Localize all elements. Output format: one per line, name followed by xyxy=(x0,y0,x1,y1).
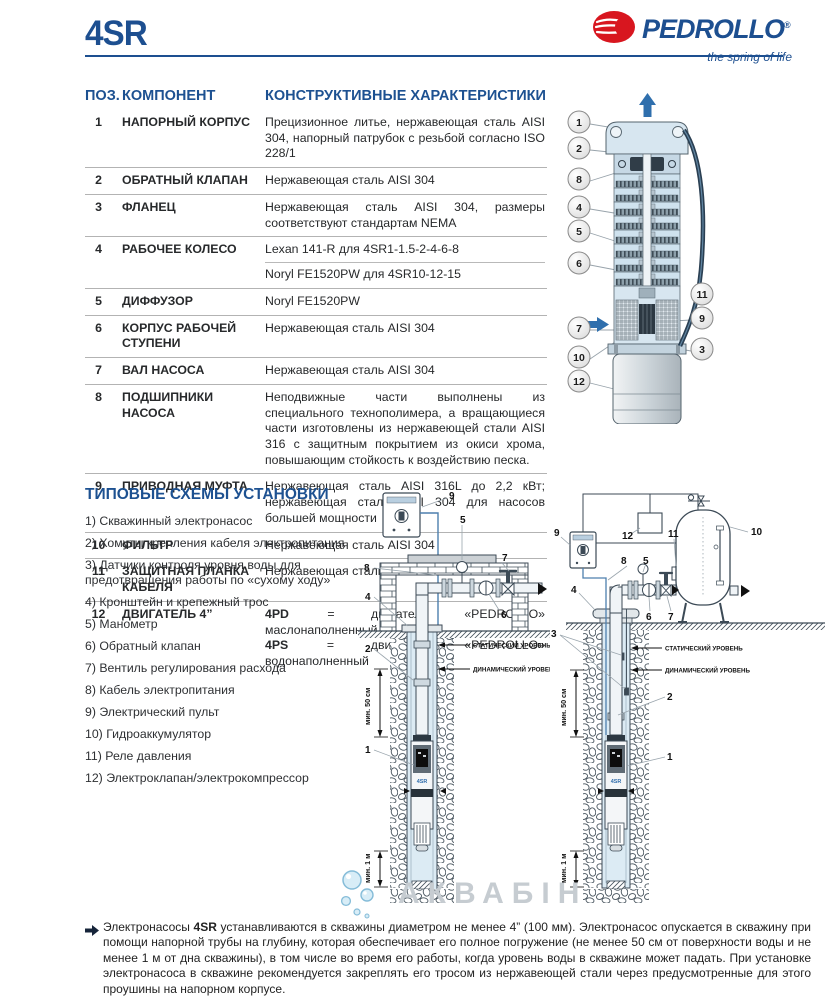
list-item: 9) Электрический пульт xyxy=(85,705,357,720)
catalog-page: 4SR PEDROLLO® the spring of life xyxy=(0,0,825,1000)
label-4: 4 xyxy=(571,585,577,596)
static-level-label: СТАТИЧЕСКИЙ УРОВЕНЬ xyxy=(665,645,743,653)
suction-strainer-left xyxy=(616,300,638,340)
motor-body xyxy=(613,354,681,424)
installation-diagram-pit: СТАТИЧЕСКИЙ УРОВЕНЬ ДИНАМИЧЕСКИЙ УРОВЕНЬ… xyxy=(350,483,550,908)
table-row: 7 ВАЛ НАСОСА Нержавеющая сталь AISI 304 xyxy=(85,358,547,385)
label-5: 5 xyxy=(460,515,466,526)
pump-drawing xyxy=(584,93,703,424)
label-5: 5 xyxy=(643,556,649,567)
water-levels: СТАТИЧЕСКИЙ УРОВЕНЬ ДИНАМИЧЕСКИЙ УРОВЕНЬ xyxy=(438,642,550,674)
pressure-gauge xyxy=(457,562,468,573)
note-arrow-icon xyxy=(85,920,103,997)
table-row: 3 ФЛАНЕЦ Нержавеющая сталь AISI 304, раз… xyxy=(85,194,547,236)
label-6: 6 xyxy=(501,610,507,621)
label-4: 4 xyxy=(365,592,371,603)
riser-pipe xyxy=(416,595,428,735)
install-section-title: ТИПОВЫЕ СХЕМЫ УСТАНОВКИ xyxy=(85,486,329,504)
callout-number: 8 xyxy=(576,174,582,186)
callout-number: 4 xyxy=(576,202,582,214)
brand-name: PEDROLLO® xyxy=(642,16,790,43)
label-8: 8 xyxy=(364,563,370,574)
list-item: 10) Гидроаккумулятор xyxy=(85,727,357,742)
dynamic-level-label: ДИНАМИЧЕСКИЙ УРОВЕНЬ xyxy=(473,666,550,674)
table-row: 4 РАБОЧЕЕ КОЛЕСО Lexan 141-R для 4SR1-1.… xyxy=(85,237,547,288)
label-2: 2 xyxy=(365,644,371,655)
table-row: 5 ДИФФУЗОР Noryl FE1520PW xyxy=(85,288,547,315)
footer-note: Электронасосы 4SR устанавливаются в сква… xyxy=(85,920,811,997)
dynamic-level-label: ДИНАМИЧЕСКИЙ УРОВЕНЬ xyxy=(665,667,750,675)
tank-top-fitting xyxy=(688,495,710,510)
list-item: 1) Скважинный электронасос xyxy=(85,514,357,529)
pump-model-label: 4SR xyxy=(417,779,428,785)
footer-text: Электронасосы 4SR устанавливаются в сква… xyxy=(103,920,811,997)
ground xyxy=(358,631,550,638)
pump-strainer xyxy=(608,823,624,845)
label-3: 3 xyxy=(551,629,557,640)
label-6: 6 xyxy=(646,612,652,623)
list-item: 8) Кабель электропитания xyxy=(85,683,357,698)
callout-number: 10 xyxy=(573,352,585,364)
pump-strainer xyxy=(414,823,430,845)
watermark: АКВАБІН xyxy=(336,868,587,920)
riser-pipe xyxy=(610,613,622,735)
callout-number: 11 xyxy=(696,289,707,301)
solenoid-box xyxy=(638,513,662,533)
label-11: 11 xyxy=(668,529,679,540)
label-9: 9 xyxy=(449,491,455,502)
list-item: 12) Электроклапан/электрокомпрессор xyxy=(85,771,357,786)
dimensions: мин. 50 см мин. 1 м xyxy=(559,670,584,887)
label-1: 1 xyxy=(365,745,371,756)
callout-number: 5 xyxy=(576,226,582,238)
callout-number: 1 xyxy=(576,117,582,129)
installation-diagram-tank: СТАТИЧЕСКИЙ УРОВЕНЬ ДИНАМИЧЕСКИЙ УРОВЕНЬ… xyxy=(548,483,825,908)
label-2: 2 xyxy=(667,692,673,703)
impeller-variant-1: Lexan 141-R для 4SR1-1.5-2-4-6-8 xyxy=(265,242,545,258)
brand-logo-icon xyxy=(592,10,636,49)
dimensions: мин. 50 см мин. 1 м xyxy=(363,669,388,887)
col-header-component: КОМПОНЕНТ xyxy=(122,84,265,110)
registered-mark: ® xyxy=(784,20,790,30)
list-item: 3) Датчики контроля уровня воды для пред… xyxy=(85,558,357,588)
table-row: 1 НАПОРНЫЙ КОРПУС Прецизионное литье, не… xyxy=(85,110,547,168)
label-7: 7 xyxy=(502,553,508,564)
pump-model-label: 4SR xyxy=(611,779,622,785)
label-7: 7 xyxy=(668,612,674,623)
label-12: 12 xyxy=(622,531,634,542)
label-9: 9 xyxy=(554,528,560,539)
list-item: 2) Хомуты крепления кабеля электропитани… xyxy=(85,536,357,551)
table-row: 6 КОРПУС РАБОЧЕЙ СТУПЕНИ Нержавеющая ста… xyxy=(85,315,547,357)
col-header-characteristics: КОНСТРУКТИВНЫЕ ХАРАКТЕРИСТИКИ xyxy=(265,84,547,110)
min-50cm-label: мин. 50 см xyxy=(559,689,568,726)
list-item: 6) Обратный клапан xyxy=(85,639,357,654)
static-level-label: СТАТИЧЕСКИЙ УРОВЕНЬ xyxy=(473,642,550,650)
pressure-tank xyxy=(676,495,750,624)
label-1: 1 xyxy=(667,752,673,763)
col-header-pos: ПОЗ. xyxy=(85,84,122,110)
list-item: 4) Кронштейн и крепежный трос xyxy=(85,595,357,610)
flow-out-arrow xyxy=(741,585,750,597)
pit-cover xyxy=(408,555,496,563)
table-row: 2 ОБРАТНЫЙ КЛАПАН Нержавеющая сталь AISI… xyxy=(85,168,547,195)
list-item: 7) Вентиль регулирования расхода xyxy=(85,661,357,676)
control-panel xyxy=(570,532,596,568)
pipe-coupling xyxy=(414,679,430,686)
callout-number: 2 xyxy=(576,143,582,155)
motor-flange xyxy=(608,344,686,354)
flow-up-arrow xyxy=(639,93,656,117)
brand-tagline: the spring of life xyxy=(592,50,792,64)
table-row: 8 ПОДШИПНИКИ НАСОСА Неподвижные части вы… xyxy=(85,384,547,474)
callout-number: 7 xyxy=(576,323,582,335)
callout-number: 9 xyxy=(699,313,705,325)
impeller-variant-2: Noryl FE1520PW для 4SR10-12-15 xyxy=(265,262,545,283)
table-header-row: ПОЗ. КОМПОНЕНТ КОНСТРУКТИВНЫЕ ХАРАКТЕРИС… xyxy=(85,84,547,110)
callout-number: 12 xyxy=(573,376,585,388)
page-title: 4SR xyxy=(85,14,147,54)
callout-number: 6 xyxy=(576,258,582,270)
list-item: 5) Манометр xyxy=(85,617,357,632)
suction-strainer-right xyxy=(656,300,678,340)
pump-cutaway-diagram: 1 2 8 4 5 6 7 10 12 11 9 3 xyxy=(556,92,820,424)
list-item: 11) Реле давления xyxy=(85,749,357,764)
callout-number: 3 xyxy=(699,344,705,356)
min-50cm-label: мин. 50 см xyxy=(363,688,372,725)
watermark-text: АКВАБІН xyxy=(398,877,587,911)
bubbles-icon xyxy=(336,868,394,920)
control-panel xyxy=(383,493,420,537)
footer-model: 4SR xyxy=(194,920,217,934)
label-10: 10 xyxy=(751,527,763,538)
header-rule xyxy=(85,55,783,57)
label-8: 8 xyxy=(621,556,627,567)
tank-outlet xyxy=(730,586,738,595)
install-list: 1) Скважинный электронасос 2) Хомуты кре… xyxy=(85,514,357,793)
